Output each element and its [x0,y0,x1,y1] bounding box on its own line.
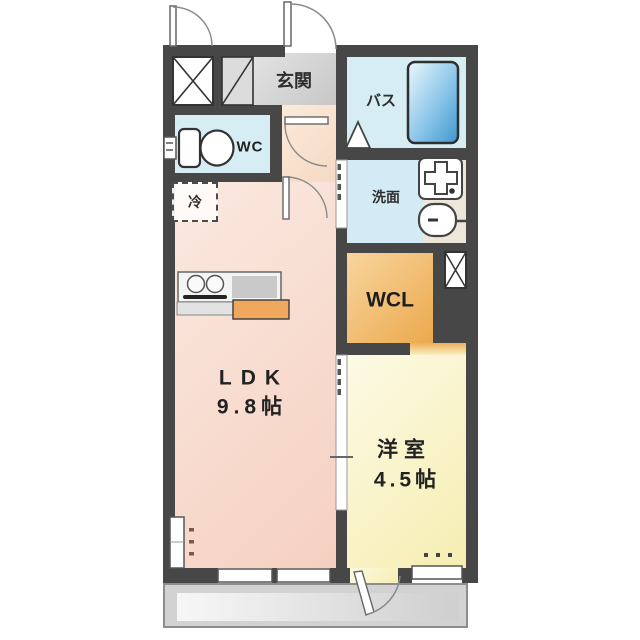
entrance-label: 玄関 [276,72,312,90]
ldk-door-arc-icon [283,177,327,219]
entrance-door-arc-icon [284,2,336,49]
grill-icon [183,295,227,299]
walk-in-closet-label: WCL [366,290,414,311]
bath-folding-door-icon [346,122,370,148]
washing-machine-pan-icon [419,158,462,199]
toilet-label: WC [237,140,264,155]
counter-return [233,300,289,319]
ldk-size-label: 9.8帖 [217,397,287,418]
stove-burner-icon [188,276,205,293]
window-ldk-side [170,517,194,568]
sink-icon [419,204,466,236]
stove-burner-icon [207,276,224,293]
balcony-door-arc-icon [354,571,400,615]
storage-door-arc-icon [170,6,212,46]
sliding-door-washroom-icon [336,160,347,228]
window-ldk-south [218,569,330,582]
bathtub-icon [408,62,458,143]
washroom-label: 洗面 [372,190,400,204]
hall-door-arc-icon [285,117,328,166]
western-room-size-label: 4.5帖 [374,470,440,491]
kitchen-counter [177,272,289,319]
sliding-door-western-icon [330,355,353,510]
western-room-label: 洋室 [377,440,431,461]
ldk-label: LDK [219,368,289,389]
toilet-icon [164,129,234,167]
shoe-cabinet-icon [222,57,253,105]
floorplan-canvas: 冷 [0,0,640,640]
pipe-space-x-icon [173,57,213,105]
pipe-space-x2-icon [445,252,466,288]
fixture-overlay [0,0,640,640]
window-western-south [412,553,462,579]
bath-label: バス [366,94,396,109]
